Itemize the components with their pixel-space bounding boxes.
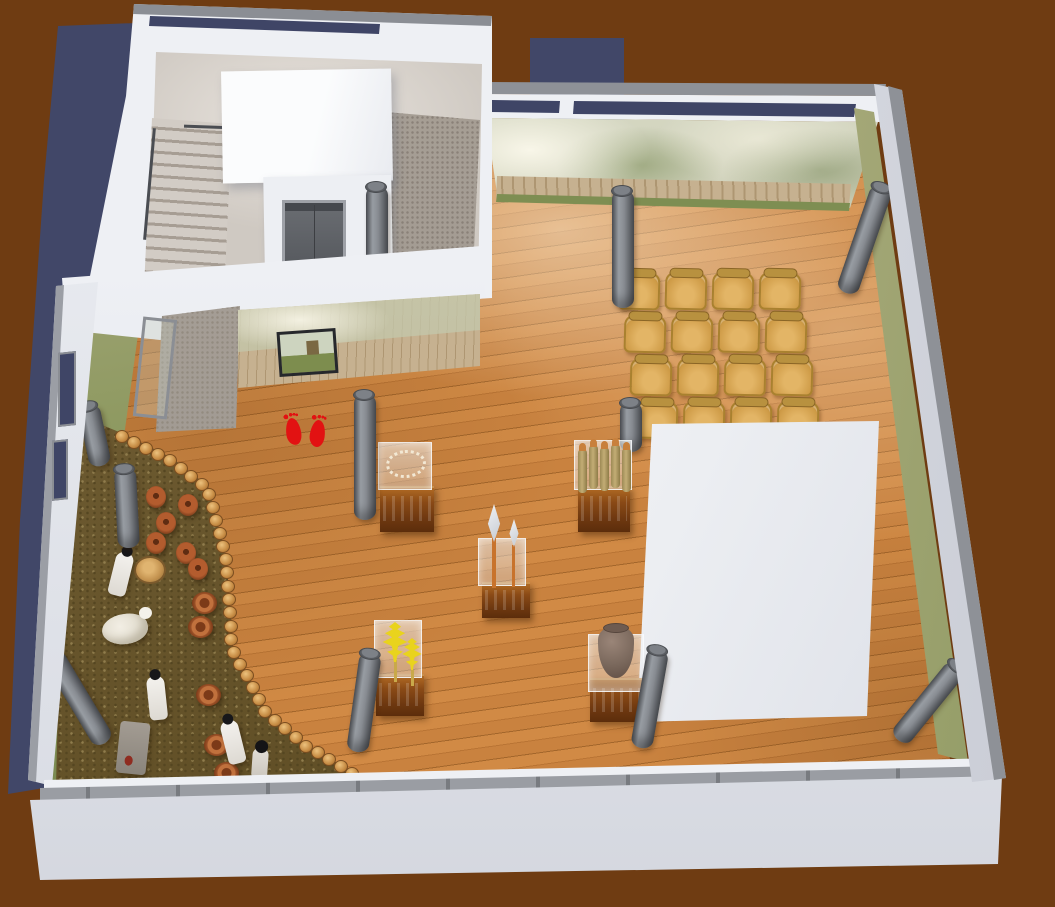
acrylic-case [478,538,526,586]
wooden-stake [578,449,587,493]
pedestal-base [380,486,434,532]
person-figure [251,747,269,778]
pottery-jar [188,558,208,580]
left-wall-window [52,439,68,501]
audience-chair [724,357,767,396]
audience-chair [771,357,814,396]
wooden-stake [622,448,631,492]
pottery-bowl [196,684,221,706]
pedestal-base [482,582,530,618]
pottery-bowl [188,616,213,638]
wheat-stem [411,670,414,686]
audience-chair [712,271,755,310]
pottery-disc [206,501,220,514]
spear-shaft [512,545,515,587]
column [354,394,376,520]
audience-chair [718,314,761,353]
audience-chair [671,314,714,353]
pottery-disc [227,646,241,659]
left-wall-window [58,351,76,427]
scene-stage [0,0,1055,907]
spear-shaft [492,538,496,588]
pottery-disc [223,606,237,619]
pottery-jar [146,486,166,508]
audience-chair [765,314,808,353]
wooden-stake [611,444,620,488]
video-screen [277,328,339,377]
pottery-jar [178,494,198,516]
pottery-jar [156,512,176,534]
audience-chair [759,271,802,310]
audience-chair [630,357,673,396]
audience-chair [665,271,708,310]
pottery-disc [213,527,227,540]
wheat-stem [394,660,397,682]
pottery-disc [221,580,235,593]
pottery-disc [224,620,238,633]
pedestal-base [376,674,424,716]
pottery-jar [146,532,166,554]
pottery-disc [222,593,236,606]
pedestal-base [578,486,630,532]
wooden-stake [589,445,598,489]
wood-stump [134,556,166,584]
column-fallen [114,468,140,549]
person-figure [115,721,150,776]
pottery-disc [219,553,233,566]
roof-cube [221,69,393,184]
audience-chair [677,357,720,396]
pottery-bowl [192,592,217,614]
wooden-stake [600,447,609,491]
pottery-disc [216,540,230,553]
audience-chair [624,314,667,353]
column [612,190,634,308]
